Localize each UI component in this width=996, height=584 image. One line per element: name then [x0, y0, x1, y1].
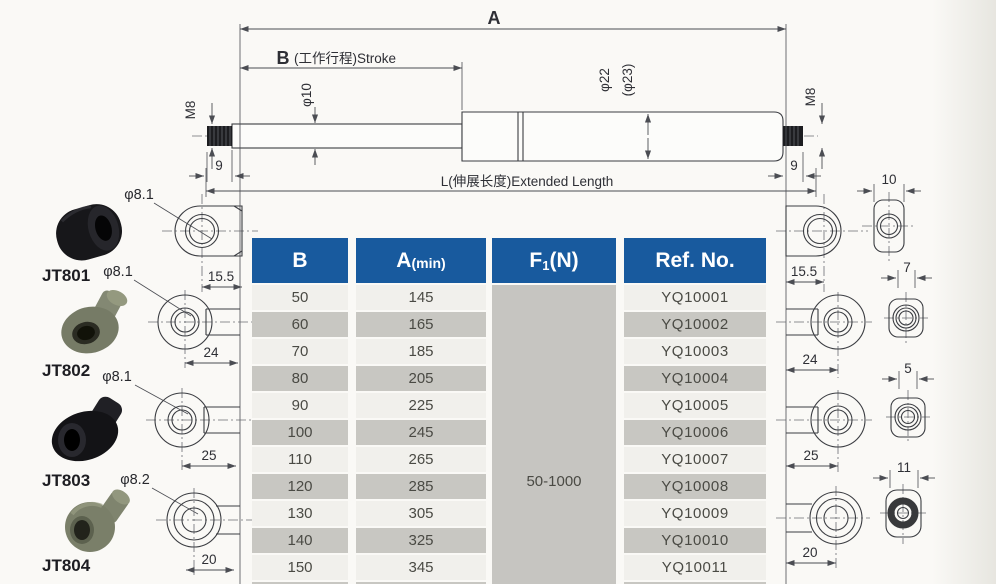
- cell-b: 50: [252, 285, 348, 310]
- end-view-dim: 11: [897, 460, 911, 475]
- fitting-width-dim: 20: [802, 545, 817, 560]
- end-view-row-3: 5: [882, 361, 934, 444]
- fitting-right-row-3: 25: [776, 390, 872, 474]
- dim-thread-right: M8: [803, 88, 818, 107]
- table-row: 50145YQ10001: [252, 285, 766, 310]
- jt802-photo: [56, 287, 130, 360]
- dim-thread-left: M8: [183, 101, 198, 120]
- col-header-a-min: A(min): [356, 238, 486, 283]
- cell-a: 145: [356, 285, 486, 310]
- table-row: 110265YQ10007: [252, 447, 766, 472]
- table-row: 150345YQ10011: [252, 555, 766, 580]
- end-view-row-2: 7: [881, 260, 932, 344]
- fitting-width-dim: 25: [201, 448, 216, 463]
- end-view-dim: 7: [903, 260, 911, 275]
- dim-l-label: L(伸展长度)Extended Length: [441, 174, 614, 189]
- fitting-width-dim: 25: [803, 448, 818, 463]
- cell-a: 285: [356, 474, 486, 499]
- cell-ref: YQ10005: [624, 393, 766, 418]
- col-header-b: B: [252, 238, 348, 283]
- spec-table-header: B A(min) F1(N) Ref. No.: [252, 238, 766, 283]
- cell-b: 100: [252, 420, 348, 445]
- dim-a-label: A: [488, 8, 501, 28]
- end-view-row-1: 10: [857, 172, 921, 262]
- table-row: 60165YQ10002: [252, 312, 766, 337]
- fitting-width-dim: 24: [802, 352, 818, 367]
- fitting-model-label: JT802: [42, 361, 90, 380]
- cell-a: 185: [356, 339, 486, 364]
- jt801-photo: [50, 198, 128, 266]
- cell-ref: YQ10009: [624, 501, 766, 526]
- piston-rod: [232, 124, 462, 148]
- cell-ref: YQ10001: [624, 285, 766, 310]
- cell-a: 225: [356, 393, 486, 418]
- table-row: 130305YQ10009: [252, 501, 766, 526]
- col-header-ref-no: Ref. No.: [624, 238, 766, 283]
- fitting-left-row-1: JT801 φ8.1 15.5: [42, 187, 258, 292]
- cell-b: 120: [252, 474, 348, 499]
- datasheet-page: A B (工作行程)Stroke L(伸展长度)Extended Length …: [0, 0, 996, 584]
- fitting-width-dim: 15.5: [791, 264, 817, 279]
- dim-b-stroke-label: (工作行程)Stroke: [294, 51, 396, 66]
- end-view-dim: 10: [881, 172, 896, 187]
- fitting-width-dim: 20: [201, 552, 216, 567]
- cell-b: 140: [252, 528, 348, 553]
- fitting-hole-dia-label: φ8.1: [103, 264, 133, 280]
- dim-b-letter: B: [277, 48, 290, 68]
- fitting-width-dim: 24: [203, 345, 219, 360]
- end-view-row-4: 11: [873, 460, 935, 544]
- cell-ref: YQ10007: [624, 447, 766, 472]
- end-view-dim: 5: [904, 361, 912, 376]
- cell-b: 110: [252, 447, 348, 472]
- cell-a: 325: [356, 528, 486, 553]
- threaded-end-left: [207, 126, 232, 146]
- fitting-right-row-2: 24: [776, 292, 872, 378]
- spec-table: B A(min) F1(N) Ref. No. 50-1000 50145YQ1…: [252, 238, 766, 584]
- fitting-hole-dia-label: φ8.1: [102, 369, 132, 385]
- cell-b: 130: [252, 501, 348, 526]
- dim-rod-diameter: φ10: [299, 83, 314, 107]
- table-row: 140325YQ10010: [252, 528, 766, 553]
- fitting-width-dim: 15.5: [208, 269, 234, 284]
- fitting-hole-dia-label: φ8.1: [124, 187, 154, 203]
- fitting-model-label: JT803: [42, 471, 90, 490]
- fitting-model-label: JT801: [42, 266, 90, 285]
- cell-ref: YQ10011: [624, 555, 766, 580]
- cell-b: 70: [252, 339, 348, 364]
- cell-ref: YQ10010: [624, 528, 766, 553]
- spec-table-body: 50145YQ10001 60165YQ10002 70185YQ10003 8…: [252, 285, 766, 584]
- table-row: 80205YQ10004: [252, 366, 766, 391]
- cell-b: 90: [252, 393, 348, 418]
- jt803-photo: [45, 394, 125, 470]
- dim-tube-diameter: φ22: [597, 68, 612, 92]
- cell-a: 205: [356, 366, 486, 391]
- cell-a: 165: [356, 312, 486, 337]
- cell-b: 150: [252, 555, 348, 580]
- dim-tube-diameter-alt: (φ23): [620, 64, 635, 97]
- gas-spring-drawing: [192, 112, 818, 161]
- cell-ref: YQ10002: [624, 312, 766, 337]
- jt804-photo: [65, 486, 133, 552]
- cell-a: 305: [356, 501, 486, 526]
- cell-a: 265: [356, 447, 486, 472]
- col-header-f1n: F1(N): [492, 238, 616, 283]
- fitting-model-label: JT804: [42, 556, 91, 575]
- cell-ref: YQ10004: [624, 366, 766, 391]
- table-row: 100245YQ10006: [252, 420, 766, 445]
- cell-ref: YQ10006: [624, 420, 766, 445]
- dim-thread-len-right: 9: [790, 158, 798, 173]
- table-row: 120285YQ10008: [252, 474, 766, 499]
- fitting-right-row-4: 20: [776, 486, 870, 570]
- cell-a: 245: [356, 420, 486, 445]
- cell-b: 80: [252, 366, 348, 391]
- dim-thread-len-left: 9: [215, 158, 223, 173]
- cell-ref: YQ10003: [624, 339, 766, 364]
- fitting-right-row-1: 15.5: [776, 194, 868, 292]
- fitting-hole-dia-label: φ8.2: [120, 472, 150, 488]
- cell-b: 60: [252, 312, 348, 337]
- cylinder-tube: [462, 112, 783, 161]
- table-row: 90225YQ10005: [252, 393, 766, 418]
- cell-ref: YQ10008: [624, 474, 766, 499]
- cell-a: 345: [356, 555, 486, 580]
- table-row: 70185YQ10003: [252, 339, 766, 364]
